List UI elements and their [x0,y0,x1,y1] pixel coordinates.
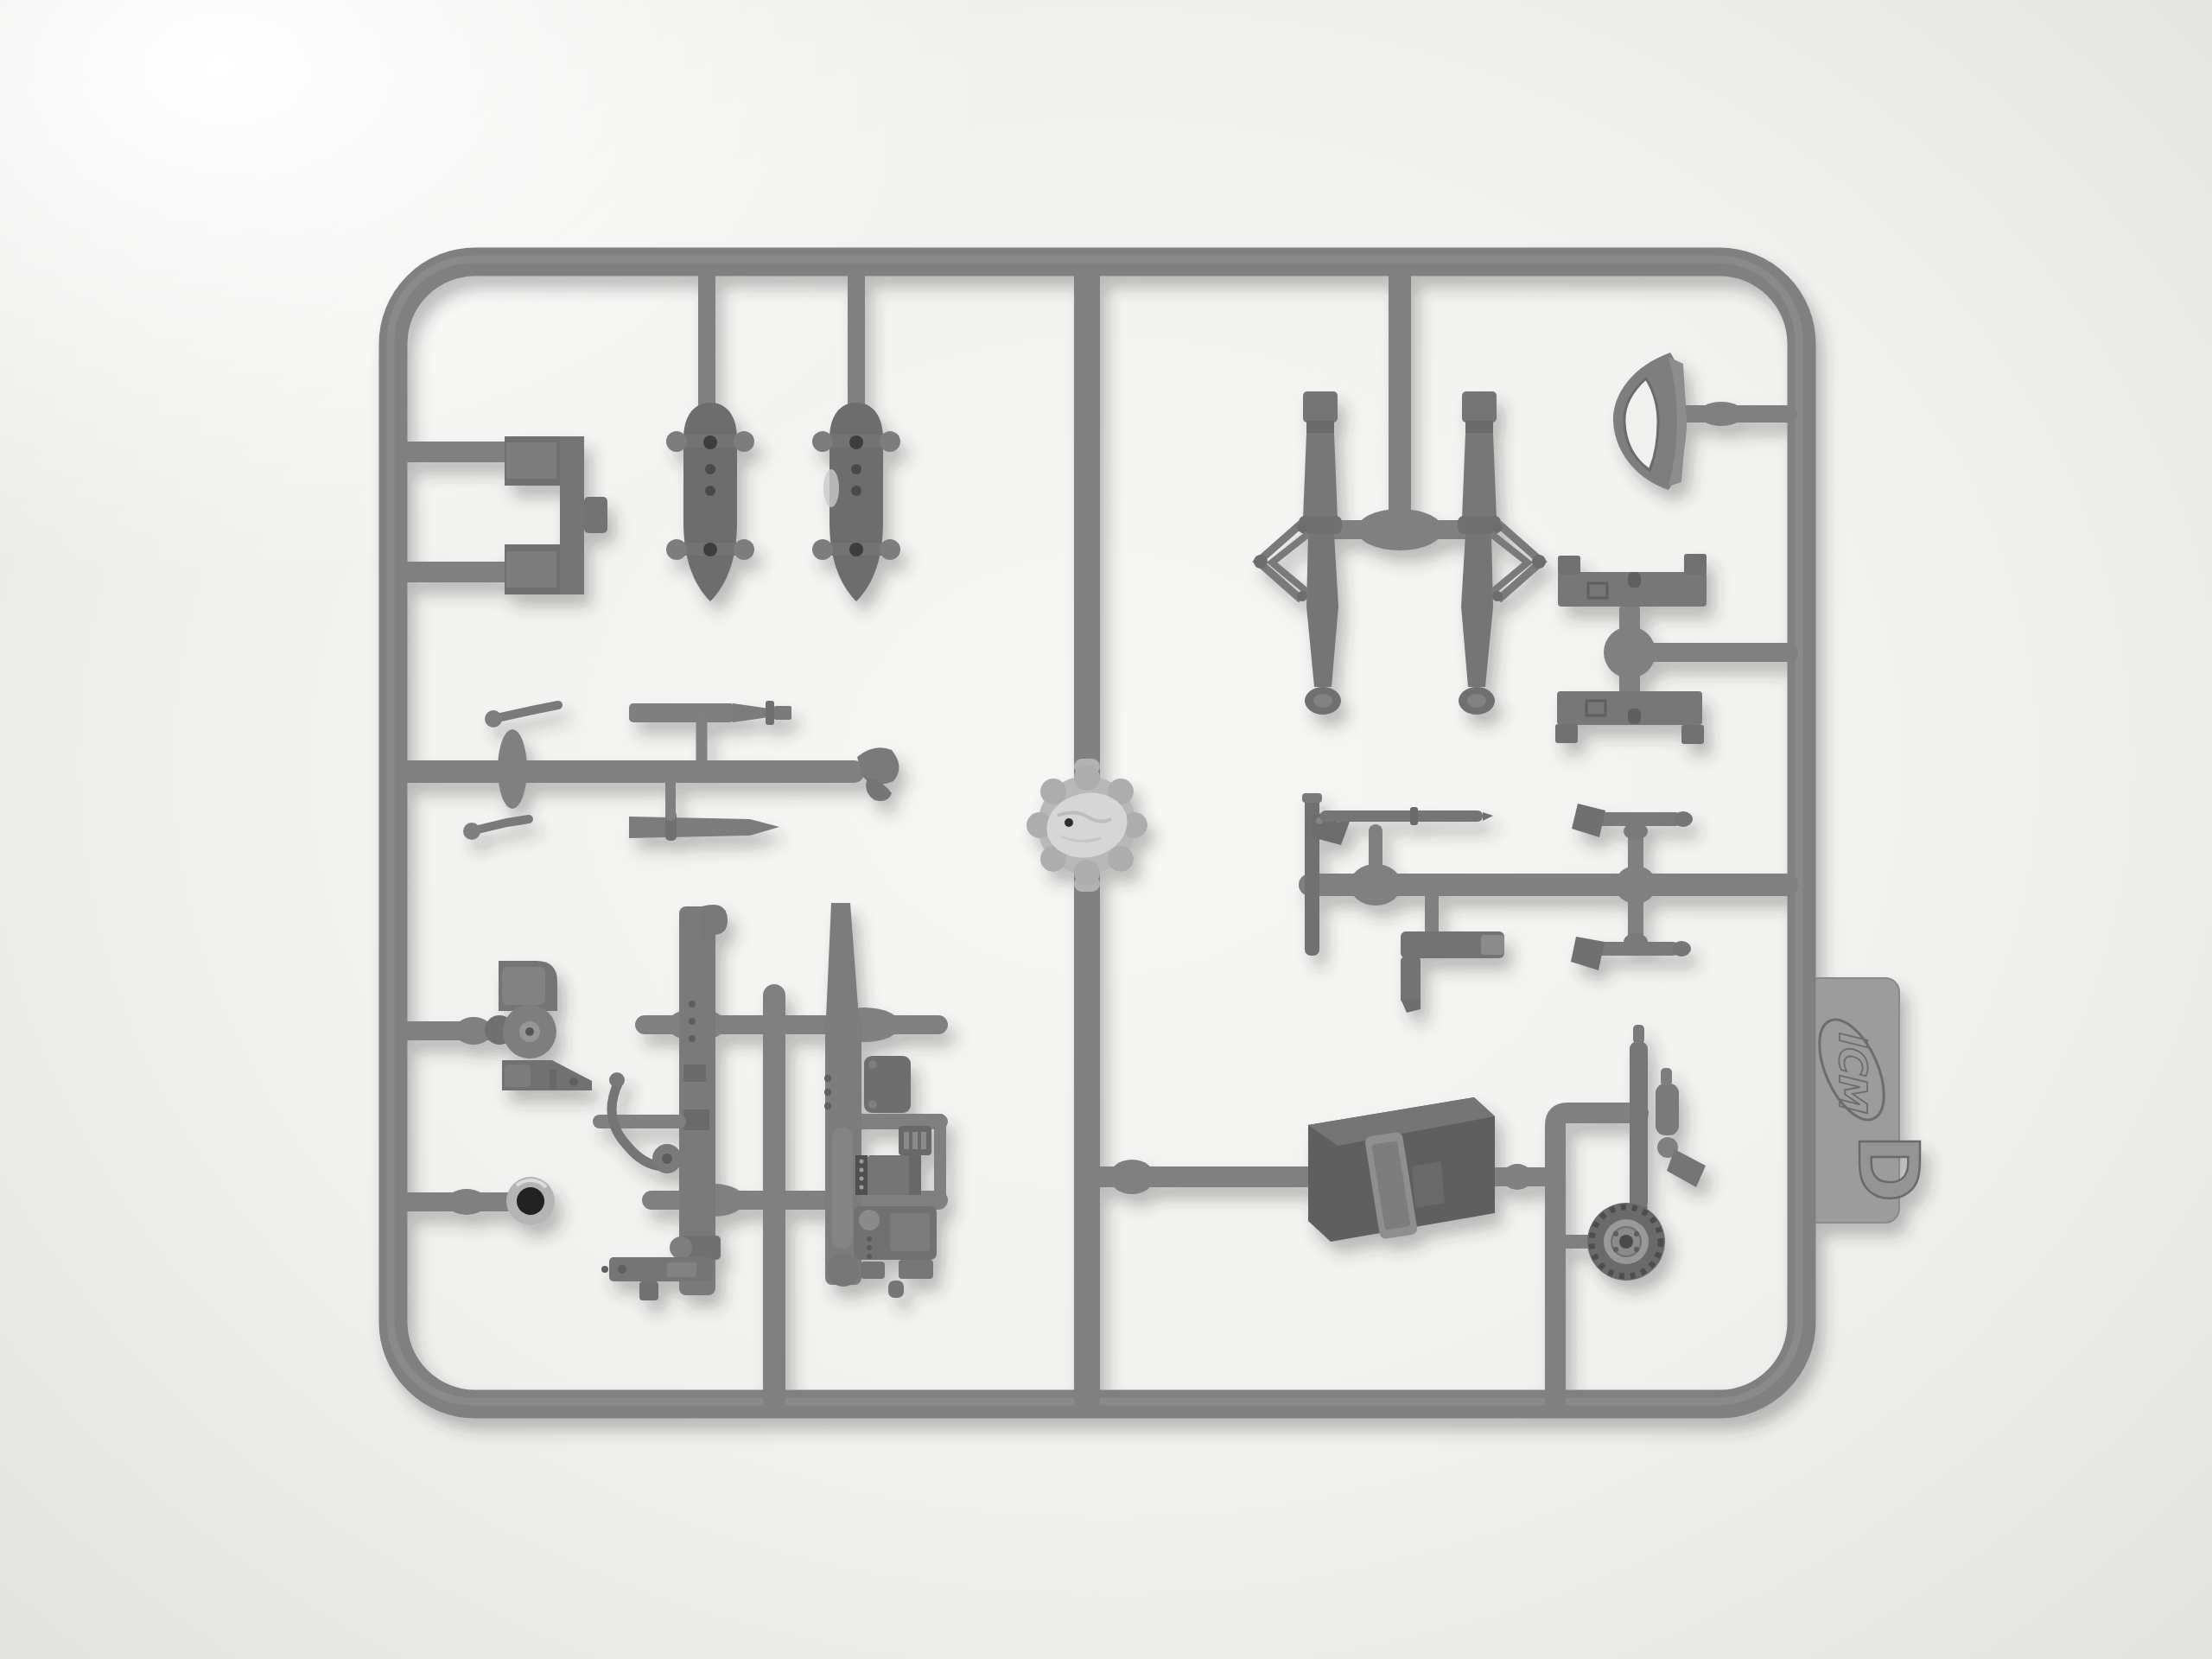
bomb-rack-upper [1558,554,1707,607]
sprue: ICM D [391,259,1936,1404]
tapered-rod-part [629,783,779,841]
intake-scoop-part [857,747,899,801]
headrest-fairing [1613,353,1687,490]
scissor-brace-right [1491,522,1546,601]
small-lever-bottom [463,819,529,840]
filler-nozzle [1667,1149,1706,1187]
injection-gate [1027,759,1147,892]
equipment-box-b [855,1155,921,1195]
strut-cylinder [1656,1084,1679,1135]
box-latch [1412,1161,1445,1208]
tail-wheel-tire [1587,1203,1665,1281]
gun-barrel-part [629,701,791,762]
sprue-letter-tab: ICM D [1804,978,1936,1223]
ammo-chute [1401,931,1504,1013]
float-right [812,403,900,601]
sprue-photo: ICM D [0,0,2212,1659]
tail-wheel [1587,1025,1706,1281]
grille-block [899,1126,931,1155]
mounting-bracket [505,436,607,594]
sprue-drawing: ICM D [0,0,2212,1659]
equipment-box [1308,1097,1495,1242]
equipment-box-a [864,1056,911,1113]
gear-strut-right [1458,391,1546,715]
equipment-box-c [854,1206,937,1260]
sprue-letter: D [1840,1134,1936,1203]
icm-logo-text: ICM [1831,1030,1875,1114]
control-lever-upper [1572,804,1693,840]
scissor-brace-left [1254,522,1308,601]
bomb-rack-lower [1555,691,1704,744]
grommet-ring [506,1177,555,1225]
sidewall-right [824,903,937,1298]
small-lever-top [485,705,558,728]
float-left [666,403,754,601]
gear-strut-left [1254,391,1342,715]
control-lever-lower [1571,933,1691,970]
breech-block [485,961,592,1090]
molding-blemish [823,469,839,507]
sidewall-left [600,905,728,1300]
